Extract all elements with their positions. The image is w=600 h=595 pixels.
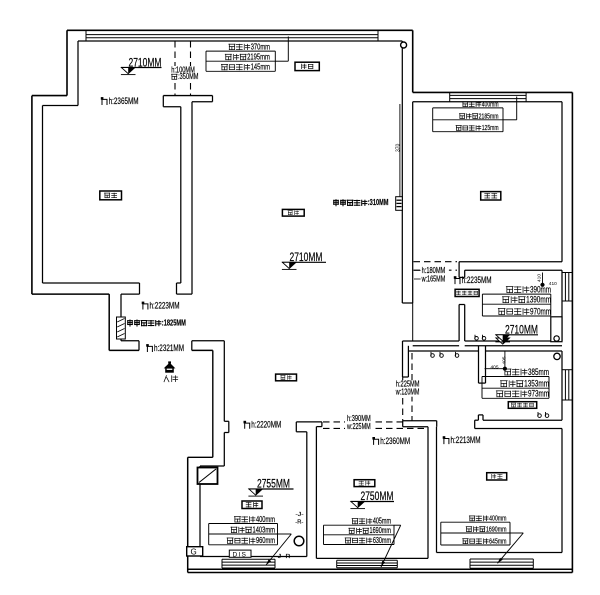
- svg-text:630mm: 630mm: [373, 536, 391, 545]
- svg-text:2710MM: 2710MM: [129, 56, 162, 69]
- svg-text:400mm: 400mm: [256, 514, 275, 524]
- svg-text:2710MM: 2710MM: [290, 251, 323, 264]
- svg-text:-J--R-: -J--R-: [276, 554, 293, 560]
- svg-text:2185mm: 2185mm: [479, 111, 499, 120]
- svg-text:370: 370: [396, 143, 402, 152]
- svg-text::1825MM: :1825MM: [162, 319, 186, 328]
- svg-text:410: 410: [549, 281, 557, 287]
- svg-text:405mm: 405mm: [373, 517, 391, 526]
- svg-text:G: G: [191, 548, 197, 557]
- svg-text:645mm: 645mm: [489, 536, 506, 545]
- svg-text:h:2360MM: h:2360MM: [380, 436, 410, 446]
- svg-text:w:120MM: w:120MM: [395, 388, 420, 397]
- svg-text:DIS: DIS: [233, 551, 248, 558]
- svg-text:125mm: 125mm: [482, 123, 499, 132]
- svg-text:385mm: 385mm: [528, 366, 549, 377]
- svg-text:2710MM: 2710MM: [505, 324, 538, 337]
- svg-text:2195mm: 2195mm: [247, 52, 270, 62]
- svg-text:h:2321MM: h:2321MM: [154, 343, 184, 353]
- svg-text:h:2223MM: h:2223MM: [150, 300, 180, 310]
- svg-text:1690mm: 1690mm: [370, 526, 392, 535]
- svg-text:h:2213MM: h:2213MM: [451, 435, 481, 445]
- svg-text:2750MM: 2750MM: [361, 490, 394, 503]
- svg-text:h:2220MM: h:2220MM: [251, 420, 281, 430]
- svg-text:400mm: 400mm: [489, 514, 506, 523]
- svg-text:405: 405: [491, 365, 499, 371]
- svg-text:960mm: 960mm: [256, 535, 275, 545]
- svg-text:400mm: 400mm: [482, 99, 499, 108]
- svg-text:-R-: -R-: [295, 520, 303, 526]
- svg-text:h:2235MM: h:2235MM: [462, 275, 492, 285]
- svg-text:w:225MM: w:225MM: [346, 422, 371, 431]
- svg-text::310MM: :310MM: [368, 198, 389, 207]
- svg-text:1390mm: 1390mm: [526, 294, 551, 305]
- svg-text:145mm: 145mm: [251, 62, 270, 72]
- svg-text:-J-: -J-: [296, 512, 304, 518]
- svg-text:w:165MM: w:165MM: [421, 275, 446, 284]
- svg-text:h:2365MM: h:2365MM: [109, 96, 139, 106]
- svg-text:410: 410: [536, 274, 542, 282]
- svg-text:1403mm: 1403mm: [252, 524, 274, 534]
- svg-text:370mm: 370mm: [251, 41, 270, 51]
- svg-text:1690mm: 1690mm: [486, 524, 507, 533]
- svg-text:2755MM: 2755MM: [257, 477, 290, 490]
- svg-text:973mm: 973mm: [528, 388, 549, 399]
- svg-text:405: 405: [502, 356, 508, 364]
- svg-text::350MM: :350MM: [178, 72, 199, 81]
- svg-text:970mm: 970mm: [530, 305, 551, 316]
